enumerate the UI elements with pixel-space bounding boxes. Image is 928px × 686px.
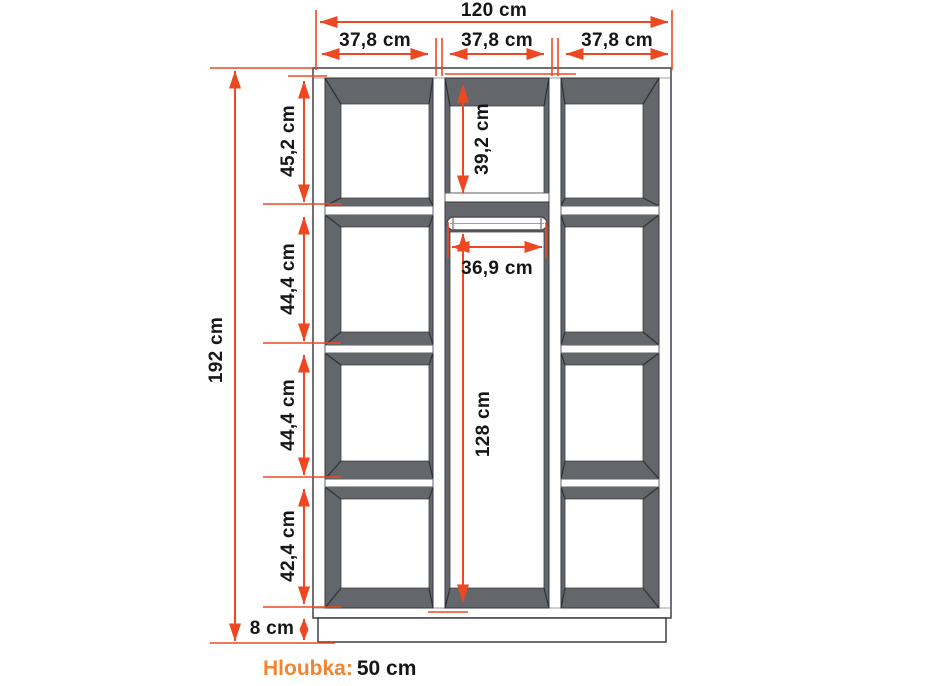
label-total-height: 192 cm <box>206 317 227 383</box>
depth-label: Hloubka: <box>263 657 353 680</box>
label-hanging-height: 128 cm <box>473 391 494 457</box>
depth-caption: Hloubka:50 cm <box>263 657 416 680</box>
right-column-compartments <box>561 78 659 608</box>
label-left-4: 42,4 cm <box>278 510 299 582</box>
diagram-canvas: 120 cm 37,8 cm 37,8 cm 37,8 cm 192 cm 45… <box>0 0 928 686</box>
depth-value: 50 cm <box>357 657 417 680</box>
label-plinth: 8 cm <box>250 618 295 639</box>
left-column-compartments <box>325 78 433 608</box>
center-shelf <box>445 193 549 202</box>
label-left-1: 45,2 cm <box>278 105 299 177</box>
wardrobe-dimension-diagram: 120 cm 37,8 cm 37,8 cm 37,8 cm 192 cm 45… <box>0 0 928 686</box>
label-left-3: 44,4 cm <box>278 379 299 451</box>
label-hanging-width: 36,9 cm <box>461 258 533 279</box>
cabinet-plinth <box>318 618 666 642</box>
label-total-width: 120 cm <box>461 0 527 21</box>
label-section-1: 37,8 cm <box>339 30 411 51</box>
label-section-2: 37,8 cm <box>461 30 533 51</box>
label-left-2: 44,4 cm <box>278 243 299 315</box>
label-center-top: 39,2 cm <box>472 103 493 175</box>
hanging-rod <box>447 217 547 230</box>
center-column-compartments <box>445 78 549 608</box>
label-section-3: 37,8 cm <box>581 30 653 51</box>
